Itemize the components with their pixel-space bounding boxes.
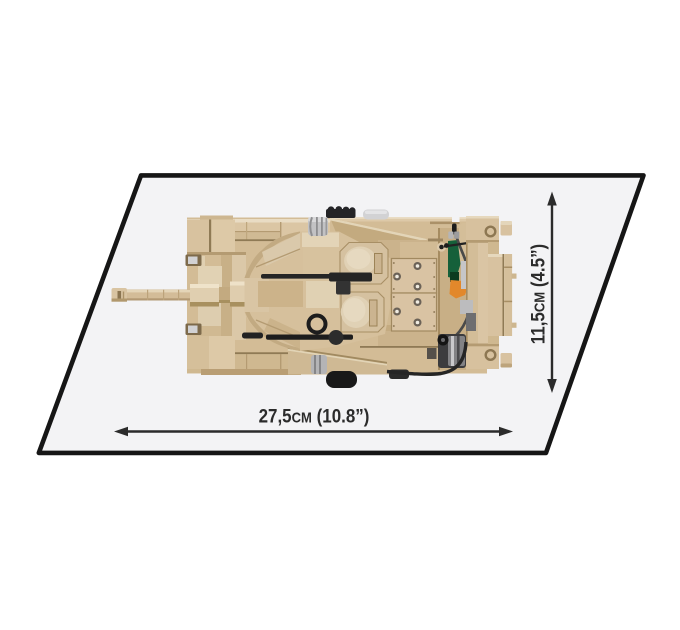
svg-text:11,5CM (4.5”): 11,5CM (4.5”)	[526, 244, 548, 344]
svg-text:27,5CM (10.8”): 27,5CM (10.8”)	[259, 404, 370, 426]
